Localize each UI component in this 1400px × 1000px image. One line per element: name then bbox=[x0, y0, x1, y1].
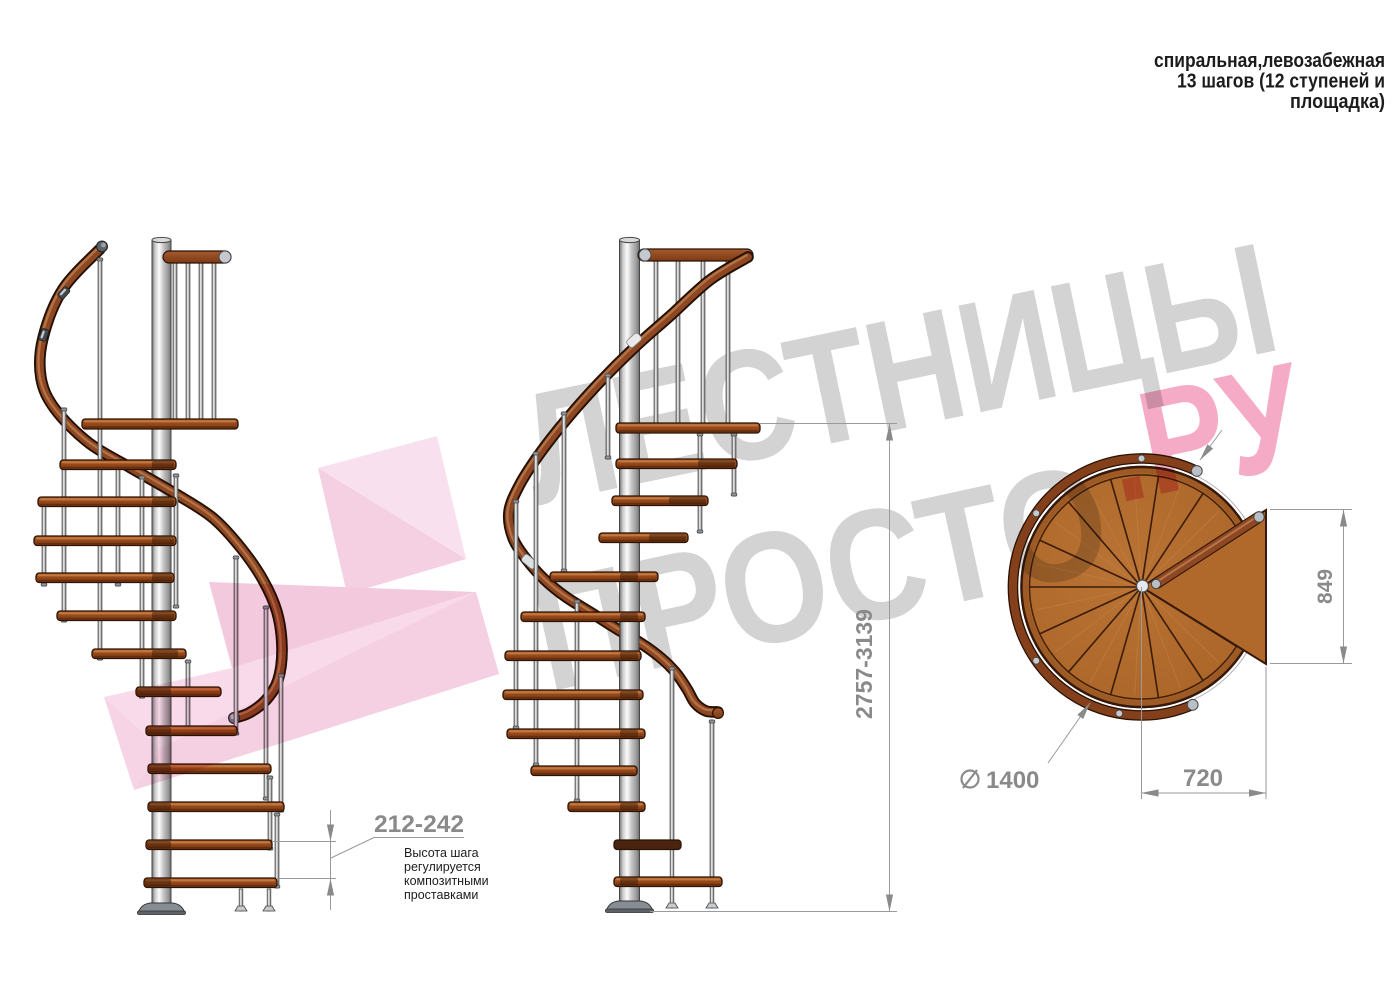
svg-text:1400: 1400 bbox=[986, 767, 1039, 794]
svg-text:Высота шага: Высота шага bbox=[404, 846, 479, 860]
svg-text:площадка): площадка) bbox=[1290, 91, 1385, 113]
svg-text:спиральная,левозабежная: спиральная,левозабежная bbox=[1154, 50, 1385, 72]
svg-text:проставками: проставками bbox=[404, 888, 478, 902]
svg-text:2757-3139: 2757-3139 bbox=[851, 609, 877, 719]
svg-text:849: 849 bbox=[1314, 569, 1337, 604]
svg-text:регулируется: регулируется bbox=[404, 860, 481, 874]
svg-text:композитными: композитными bbox=[404, 874, 489, 888]
svg-text:720: 720 bbox=[1183, 765, 1223, 792]
svg-text:13 шагов (12 ступеней и: 13 шагов (12 ступеней и bbox=[1177, 71, 1385, 93]
svg-text:212-242: 212-242 bbox=[374, 811, 464, 838]
